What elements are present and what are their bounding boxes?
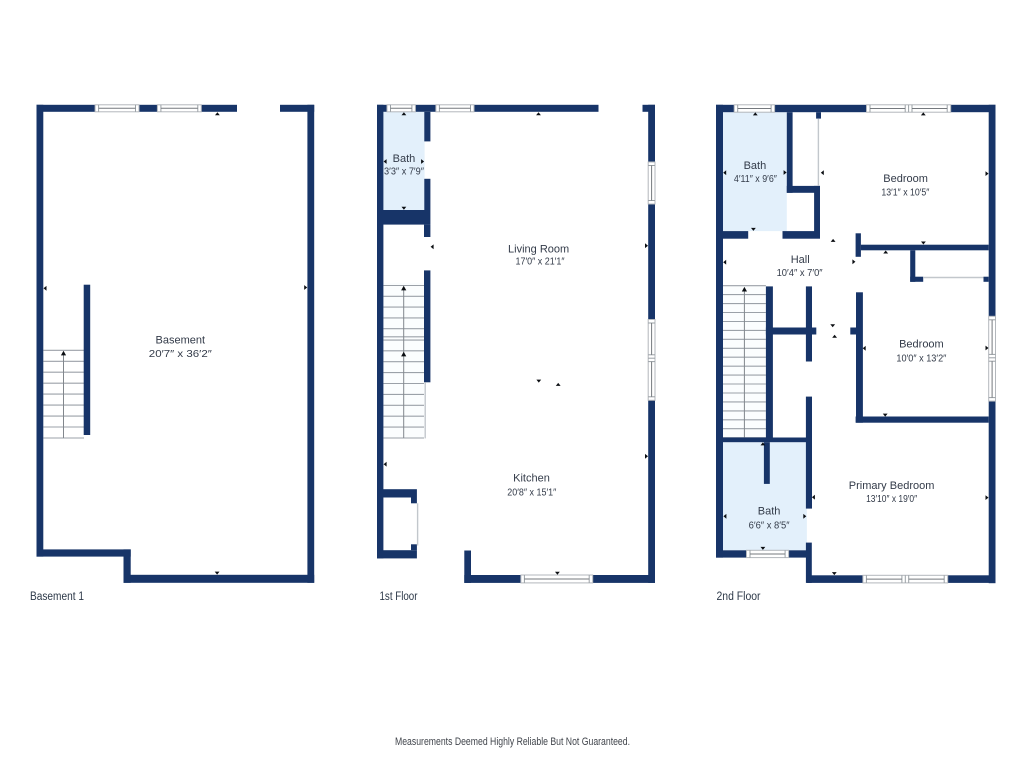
svg-text:Bath: Bath — [744, 160, 767, 172]
svg-text:Primary Bedroom: Primary Bedroom — [849, 480, 935, 492]
svg-text:6′6″ x 8′5″: 6′6″ x 8′5″ — [749, 520, 790, 531]
svg-text:1st Floor: 1st Floor — [380, 591, 418, 603]
svg-text:Hall: Hall — [791, 254, 810, 266]
svg-text:10′0″ x 13′2″: 10′0″ x 13′2″ — [896, 353, 946, 364]
svg-text:20′8″ x 15′1″: 20′8″ x 15′1″ — [507, 488, 556, 499]
svg-text:13′10″ x 19′0″: 13′10″ x 19′0″ — [866, 494, 917, 505]
svg-text:10′4″ x 7′0″: 10′4″ x 7′0″ — [777, 268, 823, 279]
svg-text:Kitchen: Kitchen — [513, 473, 550, 485]
svg-text:13′1″ x 10′5″: 13′1″ x 10′5″ — [881, 188, 929, 199]
svg-text:Measurements Deemed Highly Rel: Measurements Deemed Highly Reliable But … — [395, 736, 630, 748]
svg-text:Bedroom: Bedroom — [899, 339, 944, 351]
svg-text:4′11″ x 9′6″: 4′11″ x 9′6″ — [734, 174, 777, 185]
svg-text:2nd Floor: 2nd Floor — [717, 591, 761, 603]
svg-text:20′7″ x 36′2″: 20′7″ x 36′2″ — [149, 349, 213, 360]
svg-text:Bedroom: Bedroom — [883, 173, 928, 185]
svg-text:Bath: Bath — [758, 506, 781, 518]
svg-text:3′3″ x 7′9″: 3′3″ x 7′9″ — [384, 167, 424, 178]
svg-text:Basement: Basement — [156, 334, 206, 346]
svg-text:Bath: Bath — [393, 153, 416, 165]
svg-text:Living Room: Living Room — [508, 243, 569, 255]
svg-text:17′0″ x 21′1″: 17′0″ x 21′1″ — [516, 257, 565, 268]
svg-text:Basement 1: Basement 1 — [30, 591, 84, 603]
